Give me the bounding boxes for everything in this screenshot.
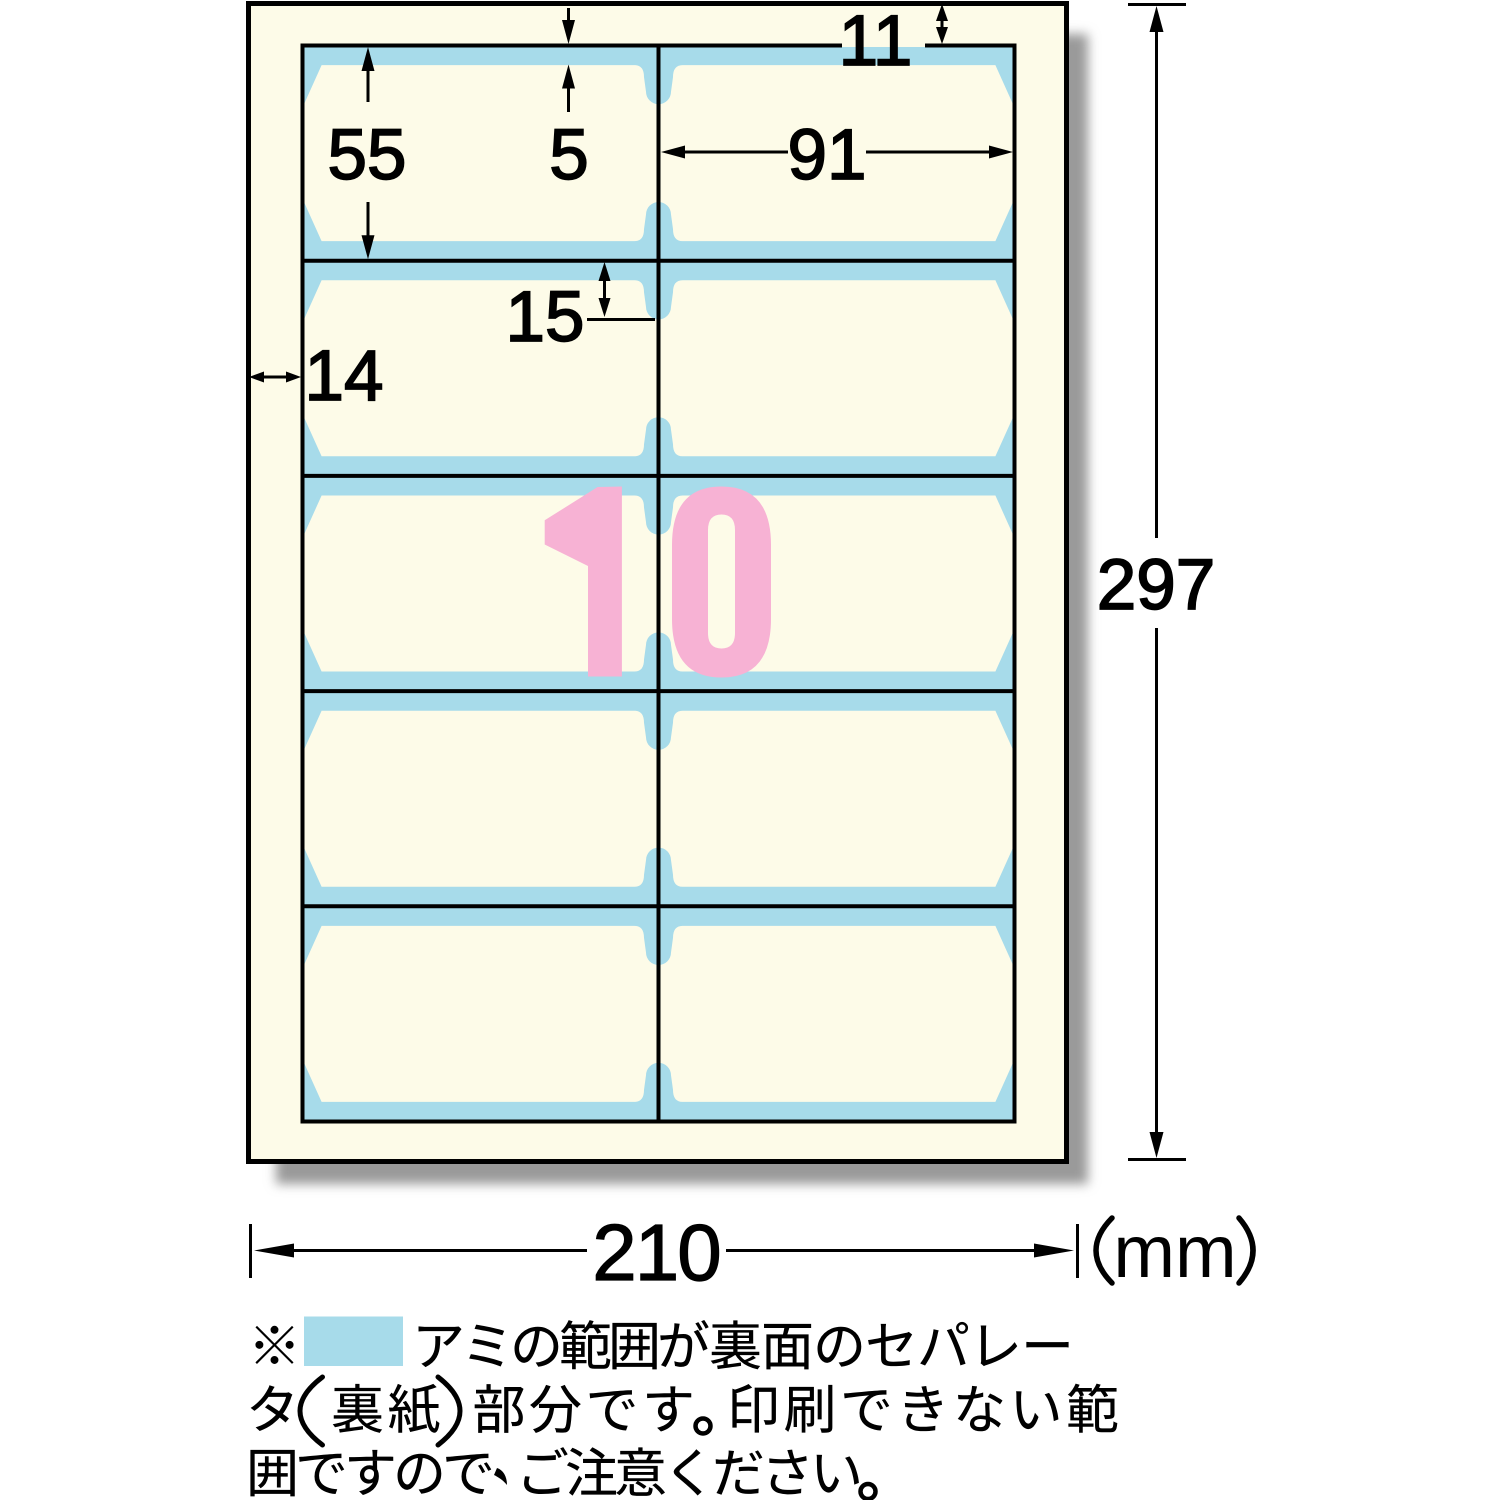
svg-text:210: 210 [592, 1208, 719, 1297]
svg-text:mm: mm [1113, 1210, 1236, 1293]
svg-text:91: 91 [788, 116, 867, 195]
svg-text:11: 11 [839, 2, 913, 81]
svg-text:297: 297 [1097, 546, 1215, 625]
svg-text:55: 55 [328, 116, 407, 195]
svg-text:14: 14 [305, 337, 384, 416]
svg-text:15: 15 [506, 278, 585, 357]
svg-text:5: 5 [549, 116, 589, 195]
